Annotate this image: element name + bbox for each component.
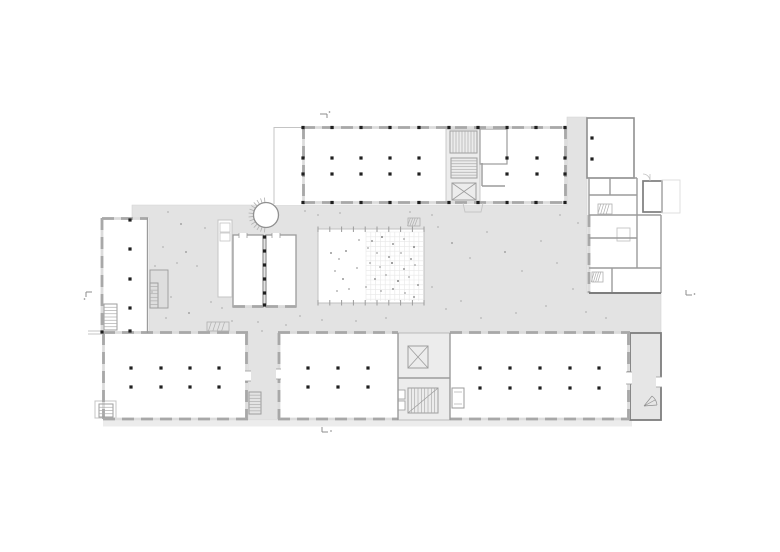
courtyard-speck: [339, 212, 341, 214]
courtyard-speck: [385, 317, 387, 319]
door-gap-1: [656, 377, 662, 387]
courtyard-speck: [431, 214, 433, 216]
column-dot: [505, 172, 508, 175]
column-dot: [330, 156, 333, 159]
column-dot: [417, 126, 420, 129]
column-dot: [263, 263, 266, 266]
courtyard-speck: [154, 265, 156, 267]
column-dot: [508, 366, 511, 369]
hall-c-duct: [452, 388, 464, 408]
column-dot: [447, 126, 450, 129]
column-dot: [366, 366, 369, 369]
hall-speck: [400, 252, 402, 254]
column-dot: [568, 366, 571, 369]
column-dot: [217, 385, 220, 388]
core-b-box-1: [398, 390, 405, 399]
courtyard-stair-block: [150, 270, 168, 308]
hall-speck: [388, 256, 390, 258]
left-wing: [100, 218, 149, 333]
column-dot: [590, 157, 593, 160]
column-dot: [301, 156, 304, 159]
round-stair: [254, 203, 279, 228]
column-dot: [129, 366, 132, 369]
column-dot: [590, 136, 593, 139]
hall-speck: [367, 247, 369, 249]
core-subroom: [480, 129, 507, 164]
courtyard-speck: [188, 312, 190, 314]
column-dot: [330, 201, 333, 204]
column-dot: [505, 201, 508, 204]
courtyard-speck: [504, 251, 506, 253]
column-dot: [263, 291, 266, 294]
door-gap-2: [276, 369, 281, 379]
column-dot: [128, 247, 131, 250]
hall-speck: [336, 290, 338, 292]
column-dot: [388, 126, 391, 129]
column-dot: [128, 306, 131, 309]
hall-speck: [380, 290, 382, 292]
courtyard-speck: [572, 288, 574, 290]
door-gap-3: [245, 371, 251, 381]
column-dot: [478, 366, 481, 369]
courtyard-speck: [556, 262, 558, 264]
column-dot: [563, 156, 566, 159]
hall-a: [103, 333, 248, 420]
section-mark-bottom-dot: [330, 430, 331, 431]
hall-speck: [410, 258, 412, 260]
bottom-right-gray-room: [630, 333, 661, 420]
column-dot: [476, 201, 479, 204]
hall-speck: [348, 288, 350, 290]
column-dot: [128, 329, 131, 332]
narrow-room-box-2: [220, 233, 230, 241]
column-dot: [301, 172, 304, 175]
door-arc-protruding-room: [643, 174, 650, 181]
protruding-room: [643, 181, 662, 212]
column-dot: [563, 201, 566, 204]
column-dot: [417, 156, 420, 159]
courtyard-speck: [257, 321, 259, 323]
hall-speck: [413, 246, 415, 248]
hall-speck: [392, 288, 394, 290]
column-dot: [301, 126, 304, 129]
hall-speck: [334, 270, 336, 272]
column-dot: [505, 156, 508, 159]
column-dot: [478, 386, 481, 389]
courtyard-speck: [460, 300, 462, 302]
hall-speck: [404, 292, 406, 294]
courtyard-speck: [176, 262, 178, 264]
hall-b: [278, 333, 398, 420]
column-dot: [563, 126, 566, 129]
hall-speck: [356, 267, 358, 269]
column-dot: [417, 201, 420, 204]
hall-speck: [358, 239, 360, 241]
hall-speck: [379, 266, 381, 268]
courtyard-speck: [540, 240, 542, 242]
column-dot: [534, 126, 537, 129]
column-dot: [388, 201, 391, 204]
section-mark-top-dot: [329, 111, 330, 112]
courtyard-speck: [445, 308, 447, 310]
courtyard-speck: [486, 231, 488, 233]
complex-stair-hatch-hatch: [603, 204, 606, 214]
column-dot: [359, 126, 362, 129]
column-dot: [535, 156, 538, 159]
hall-speck: [376, 252, 378, 254]
column-dot: [336, 366, 339, 369]
courtyard-speck: [151, 291, 153, 293]
right-top-room: [587, 118, 634, 178]
column-dot: [263, 235, 266, 238]
column-dot: [447, 201, 450, 204]
courtyard-speck: [521, 270, 523, 272]
column-dot: [263, 249, 266, 252]
column-dot: [359, 172, 362, 175]
strip-below-halls: [103, 421, 632, 427]
column-dot: [217, 366, 220, 369]
hall-speck: [345, 250, 347, 252]
hall-speck: [330, 252, 332, 254]
hall-speck: [403, 238, 405, 240]
courtyard-speck: [165, 317, 167, 319]
section-mark-right-dot: [694, 293, 695, 294]
core-b-box-2: [398, 401, 405, 410]
column-dot: [159, 385, 162, 388]
column-dot: [159, 366, 162, 369]
courtyard-speck: [437, 226, 439, 228]
hall-c: [450, 333, 630, 420]
courtyard-speck: [170, 296, 172, 298]
hall-speck: [392, 243, 394, 245]
round-stair-hatch: [249, 213, 254, 214]
round-stair-hatch: [261, 198, 263, 203]
column-dot: [336, 385, 339, 388]
column-dot: [301, 201, 304, 204]
courtyard-speck: [409, 211, 411, 213]
column-dot: [505, 126, 508, 129]
detail-square: [617, 228, 630, 241]
column-dot: [597, 366, 600, 369]
column-dot: [476, 126, 479, 129]
column-dot: [263, 303, 266, 306]
column-dot: [538, 366, 541, 369]
column-dot: [188, 366, 191, 369]
courtyard-speck: [196, 265, 198, 267]
courtyard-speck: [221, 307, 223, 309]
courtyard-speck: [451, 242, 453, 244]
courtyard-speck: [180, 223, 182, 225]
column-dot: [263, 277, 266, 280]
hall-speck: [338, 258, 340, 260]
section-mark-left-dot: [84, 298, 85, 299]
courtyard-speck: [285, 324, 287, 326]
twin-room-left: [233, 235, 263, 307]
courtyard-speck: [210, 301, 212, 303]
courtyard-speck: [605, 317, 607, 319]
column-dot: [188, 385, 191, 388]
round-stair-hatch: [249, 216, 254, 217]
floor-plan-canvas: [0, 0, 780, 552]
hall-speck: [385, 274, 387, 276]
courtyard-speck: [204, 227, 206, 229]
courtyard-speck: [299, 315, 301, 317]
hall-speck: [403, 268, 405, 270]
column-dot: [563, 172, 566, 175]
column-dot: [128, 277, 131, 280]
twin-room-right: [266, 235, 296, 307]
courtyard-speck: [317, 214, 319, 216]
courtyard-speck: [469, 257, 471, 259]
hall-speck: [374, 278, 376, 280]
complex-stair-hatch-hatch: [601, 204, 604, 214]
courtyard-speck: [355, 320, 357, 322]
column-dot: [388, 172, 391, 175]
courtyard-speck: [304, 210, 306, 212]
column-dot: [534, 201, 537, 204]
courtyard-speck: [559, 214, 561, 216]
column-dot: [538, 386, 541, 389]
hall-speck: [408, 276, 410, 278]
courtyard-speck: [480, 317, 482, 319]
hall-speck: [397, 280, 399, 282]
column-dot: [129, 385, 132, 388]
column-dot: [597, 386, 600, 389]
door-gap-5: [272, 233, 280, 238]
courtyard-speck: [321, 319, 323, 321]
hall-speck: [413, 296, 415, 298]
hall-speck: [369, 262, 371, 264]
courtyard-speck: [585, 311, 587, 313]
courtyard-speck: [167, 211, 169, 213]
column-dot: [359, 201, 362, 204]
hall-speck: [342, 278, 344, 280]
narrow-room-box-1: [220, 223, 230, 232]
courtyard-speck: [545, 305, 547, 307]
column-dot: [508, 386, 511, 389]
column-dot: [417, 172, 420, 175]
column-dot: [388, 156, 391, 159]
courtyard-speck: [515, 312, 517, 314]
door-gap-4: [239, 233, 247, 238]
complex-stair-hatch-hatch: [606, 204, 609, 214]
courtyard-speck: [431, 286, 433, 288]
hall-speck: [417, 284, 419, 286]
column-dot: [330, 172, 333, 175]
round-stair-hatch: [257, 200, 260, 204]
courtyard-speck: [231, 320, 233, 322]
column-dot: [306, 385, 309, 388]
column-dot: [359, 156, 362, 159]
column-dot: [128, 218, 131, 221]
hall-speck: [414, 264, 416, 266]
hall-speck: [371, 240, 373, 242]
column-dot: [100, 330, 103, 333]
column-dot: [535, 172, 538, 175]
column-dot: [366, 385, 369, 388]
door-gap-0: [626, 372, 632, 384]
courtyard-speck: [185, 251, 187, 253]
courtyard-speck: [261, 330, 263, 332]
top-wing-corridor: [274, 127, 303, 205]
hall-speck: [391, 262, 393, 264]
hall-speck: [365, 286, 367, 288]
column-dot: [568, 386, 571, 389]
column-dot: [330, 126, 333, 129]
courtyard-speck: [577, 222, 579, 224]
hall-speck: [381, 236, 383, 238]
faint-annex: [662, 180, 680, 213]
floor-plan-svg: [0, 0, 780, 552]
courtyard-speck: [162, 246, 164, 248]
column-dot: [306, 366, 309, 369]
